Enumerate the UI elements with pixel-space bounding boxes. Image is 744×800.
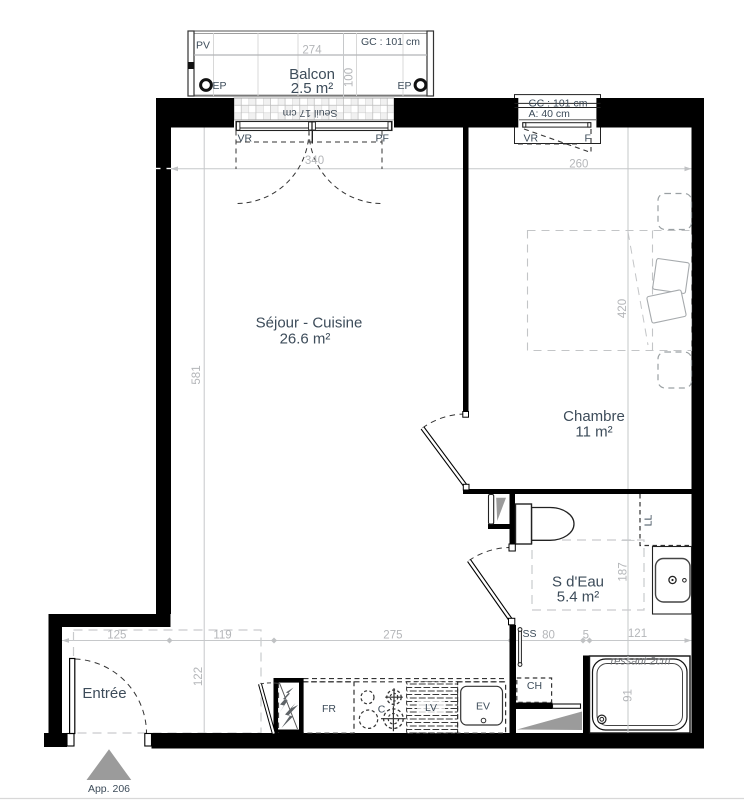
svg-text:187: 187 (618, 562, 630, 581)
svg-text:26.6 m²: 26.6 m² (280, 331, 331, 348)
svg-text:EV: EV (476, 701, 490, 713)
svg-text:340: 340 (305, 155, 324, 167)
svg-text:2.5 m²: 2.5 m² (291, 80, 334, 97)
svg-text:274: 274 (302, 45, 322, 57)
svg-text:EP: EP (398, 80, 412, 92)
svg-text:275: 275 (383, 630, 402, 642)
svg-text:EP: EP (213, 80, 227, 92)
svg-text:5.4 m²: 5.4 m² (557, 589, 600, 606)
svg-text:Seuil 17 cm: Seuil 17 cm (282, 107, 337, 119)
svg-text:C: C (378, 704, 386, 716)
svg-text:100: 100 (344, 68, 356, 87)
svg-text:91: 91 (623, 689, 635, 702)
svg-text:FR: FR (322, 703, 336, 715)
svg-text:122: 122 (193, 667, 205, 686)
svg-text:80: 80 (542, 630, 555, 642)
svg-text:A: 40 cm: A: 40 cm (529, 108, 571, 120)
svg-text:125: 125 (107, 630, 126, 642)
svg-text:PV: PV (196, 40, 210, 52)
svg-text:5: 5 (583, 630, 589, 642)
svg-text:11 m²: 11 m² (575, 424, 612, 441)
svg-text:VR: VR (238, 133, 253, 145)
svg-text:Séjour - Cuisine: Séjour - Cuisine (256, 315, 363, 332)
svg-text:Entrée: Entrée (82, 685, 126, 702)
svg-text:Chambre: Chambre (563, 408, 625, 425)
svg-text:SS: SS (523, 628, 537, 640)
svg-text:VR: VR (524, 133, 539, 145)
svg-text:CH: CH (527, 680, 542, 692)
svg-text:260: 260 (569, 159, 588, 171)
svg-text:ressaut 2cm: ressaut 2cm (611, 656, 671, 668)
svg-text:LV: LV (425, 702, 437, 714)
svg-text:LL: LL (643, 515, 655, 527)
svg-text:GC : 101 cm: GC : 101 cm (361, 36, 420, 48)
svg-text:119: 119 (213, 630, 231, 642)
svg-text:F: F (585, 133, 591, 145)
svg-text:App. 206: App. 206 (88, 783, 130, 795)
svg-text:420: 420 (617, 299, 629, 318)
svg-text:121: 121 (628, 628, 647, 640)
svg-text:581: 581 (191, 365, 203, 384)
